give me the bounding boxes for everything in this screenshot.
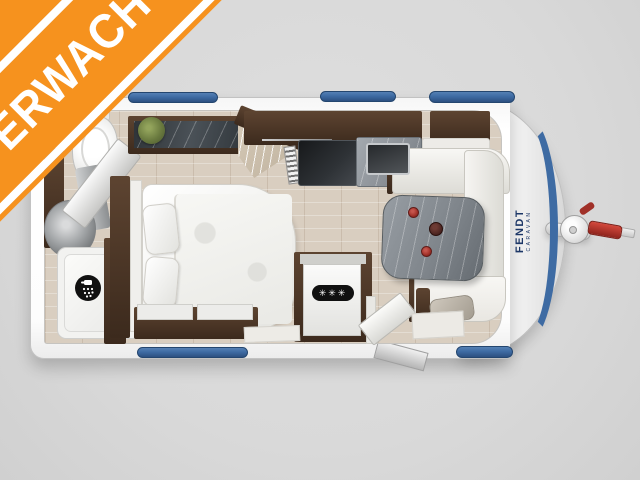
floor-mat-2: [411, 311, 464, 340]
window-top-3: [429, 91, 515, 103]
floor-mat-1: [244, 325, 301, 343]
bench-cushion-1: [137, 304, 193, 320]
kitchen-sink: [366, 143, 410, 175]
floorplan-canvas: ✳✳✳ FENDT CARAVAN VERWACHT: [0, 0, 640, 480]
bowl: [429, 222, 443, 236]
pillow-1: [141, 202, 180, 255]
dinette-table: [381, 194, 486, 282]
jockey-wheel-mount: [560, 215, 589, 244]
window-bottom-2: [456, 346, 513, 358]
freezer-rating-label: ✳✳✳: [312, 285, 354, 301]
plant: [138, 117, 165, 144]
brand-name: FENDT: [514, 198, 526, 264]
shower-icon: [74, 274, 102, 302]
fridge-top-surface: [300, 254, 366, 264]
cup-2: [421, 246, 432, 257]
brand-subtitle: CARAVAN: [526, 198, 533, 264]
jockey-wheel-hole: [569, 226, 577, 234]
hitch-coupling: [587, 220, 623, 240]
pillow-2: [142, 256, 180, 309]
window-top-1: [128, 92, 218, 103]
cup-1: [408, 207, 419, 218]
bench-cushion-2: [197, 304, 253, 320]
bed-storage-bench: [134, 307, 258, 339]
hitch-red-lever: [578, 201, 595, 216]
cooktop: [298, 140, 358, 186]
window-top-2: [320, 91, 396, 102]
bed-headboard: [110, 176, 130, 338]
window-bottom-1: [137, 347, 248, 358]
brand-logo: FENDT CARAVAN: [514, 198, 552, 264]
